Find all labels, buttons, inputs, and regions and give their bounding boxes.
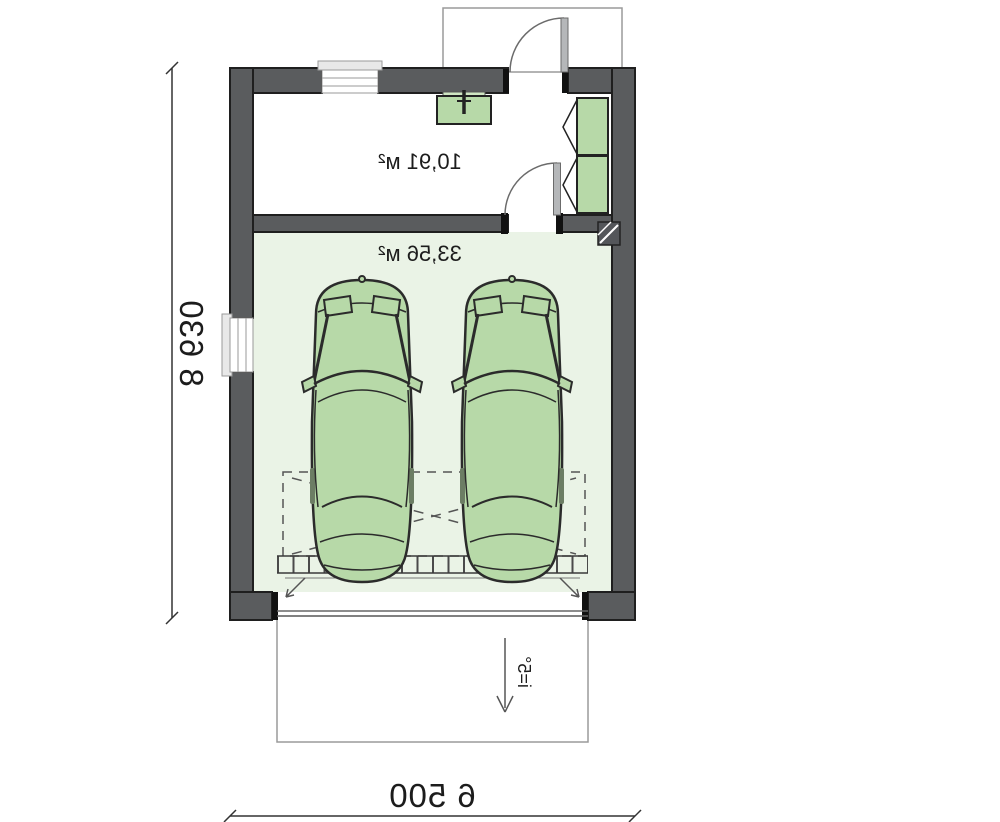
left-wall-lower-segment	[230, 372, 253, 620]
driveway-outline	[277, 616, 588, 742]
garage-door	[277, 611, 588, 616]
slope-label: i=5°	[514, 656, 534, 688]
flue-hatch-icon	[598, 222, 620, 245]
entry-porch-outline	[443, 8, 622, 72]
right-wall	[612, 68, 635, 620]
boiler-icon	[437, 90, 491, 124]
door-leaf	[554, 163, 561, 215]
width-dimension-label: 6 500	[388, 777, 476, 814]
bottom-wall-left-stub	[230, 592, 272, 620]
car-right	[452, 276, 572, 582]
window-top	[318, 61, 382, 93]
garage-area-label: 33,56 м²	[378, 241, 462, 266]
bottom-wall-right-stub	[588, 592, 635, 620]
top-wall-mid-segment	[378, 68, 508, 93]
window-left	[222, 314, 253, 376]
car-left	[302, 276, 422, 582]
left-wall-upper-segment	[230, 68, 253, 318]
interior-wall-left-segment	[253, 215, 508, 232]
door-leaf	[561, 18, 568, 72]
height-dimension-label: 8 630	[173, 299, 210, 387]
floor-plan-canvas: 10,91 м² 33,56 м² 8 630 6 500 i=5°	[0, 0, 1000, 822]
room-area-label: 10,91 м²	[378, 149, 462, 174]
floor-plan-drawing: 10,91 м² 33,56 м² 8 630 6 500 i=5°	[0, 0, 1000, 822]
